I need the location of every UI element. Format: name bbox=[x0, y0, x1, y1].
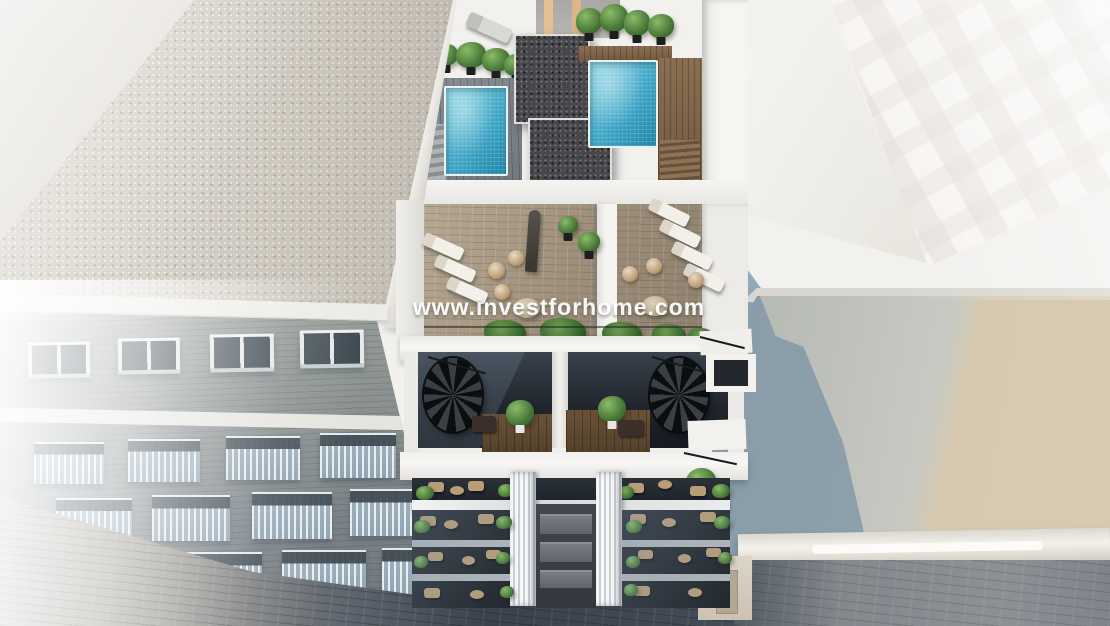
recess-window bbox=[540, 514, 592, 534]
aerial-render-canvas: www.investforhome.com bbox=[0, 0, 1110, 626]
balcony-chair bbox=[472, 416, 496, 432]
balcony-furniture bbox=[658, 480, 672, 489]
potted-plant bbox=[598, 396, 626, 422]
recess-window bbox=[540, 570, 592, 588]
side-balcony-interior bbox=[714, 360, 748, 386]
balcony-chair bbox=[618, 420, 644, 436]
plant bbox=[578, 232, 600, 252]
wicker-chair bbox=[622, 266, 638, 282]
side-fascia bbox=[687, 419, 746, 451]
plant bbox=[648, 14, 674, 38]
balcony-furniture bbox=[468, 481, 484, 491]
fluted-pilaster bbox=[510, 472, 536, 606]
glass-railing bbox=[622, 510, 730, 608]
overexposure-overlay bbox=[690, 0, 1110, 300]
rooftop-pool-left bbox=[444, 86, 508, 176]
plant bbox=[576, 8, 602, 34]
fluted-pilaster bbox=[596, 472, 622, 606]
tan-pillar bbox=[544, 0, 553, 38]
sun-lounger bbox=[465, 11, 513, 43]
haze-overlay bbox=[0, 280, 470, 626]
watermark: www.investforhome.com bbox=[372, 295, 746, 320]
potted-plant bbox=[506, 400, 534, 426]
wicker-chair bbox=[488, 262, 505, 279]
plant bbox=[434, 44, 458, 66]
rooftop-pool-right bbox=[588, 60, 658, 148]
wicker-chair bbox=[646, 258, 662, 274]
plant bbox=[558, 216, 578, 234]
recess-window bbox=[540, 542, 592, 562]
plant bbox=[712, 484, 730, 498]
sun-glare-overlay bbox=[0, 0, 430, 320]
plant bbox=[624, 10, 650, 36]
balcony-furniture bbox=[690, 486, 706, 496]
wicker-chair bbox=[508, 250, 524, 266]
